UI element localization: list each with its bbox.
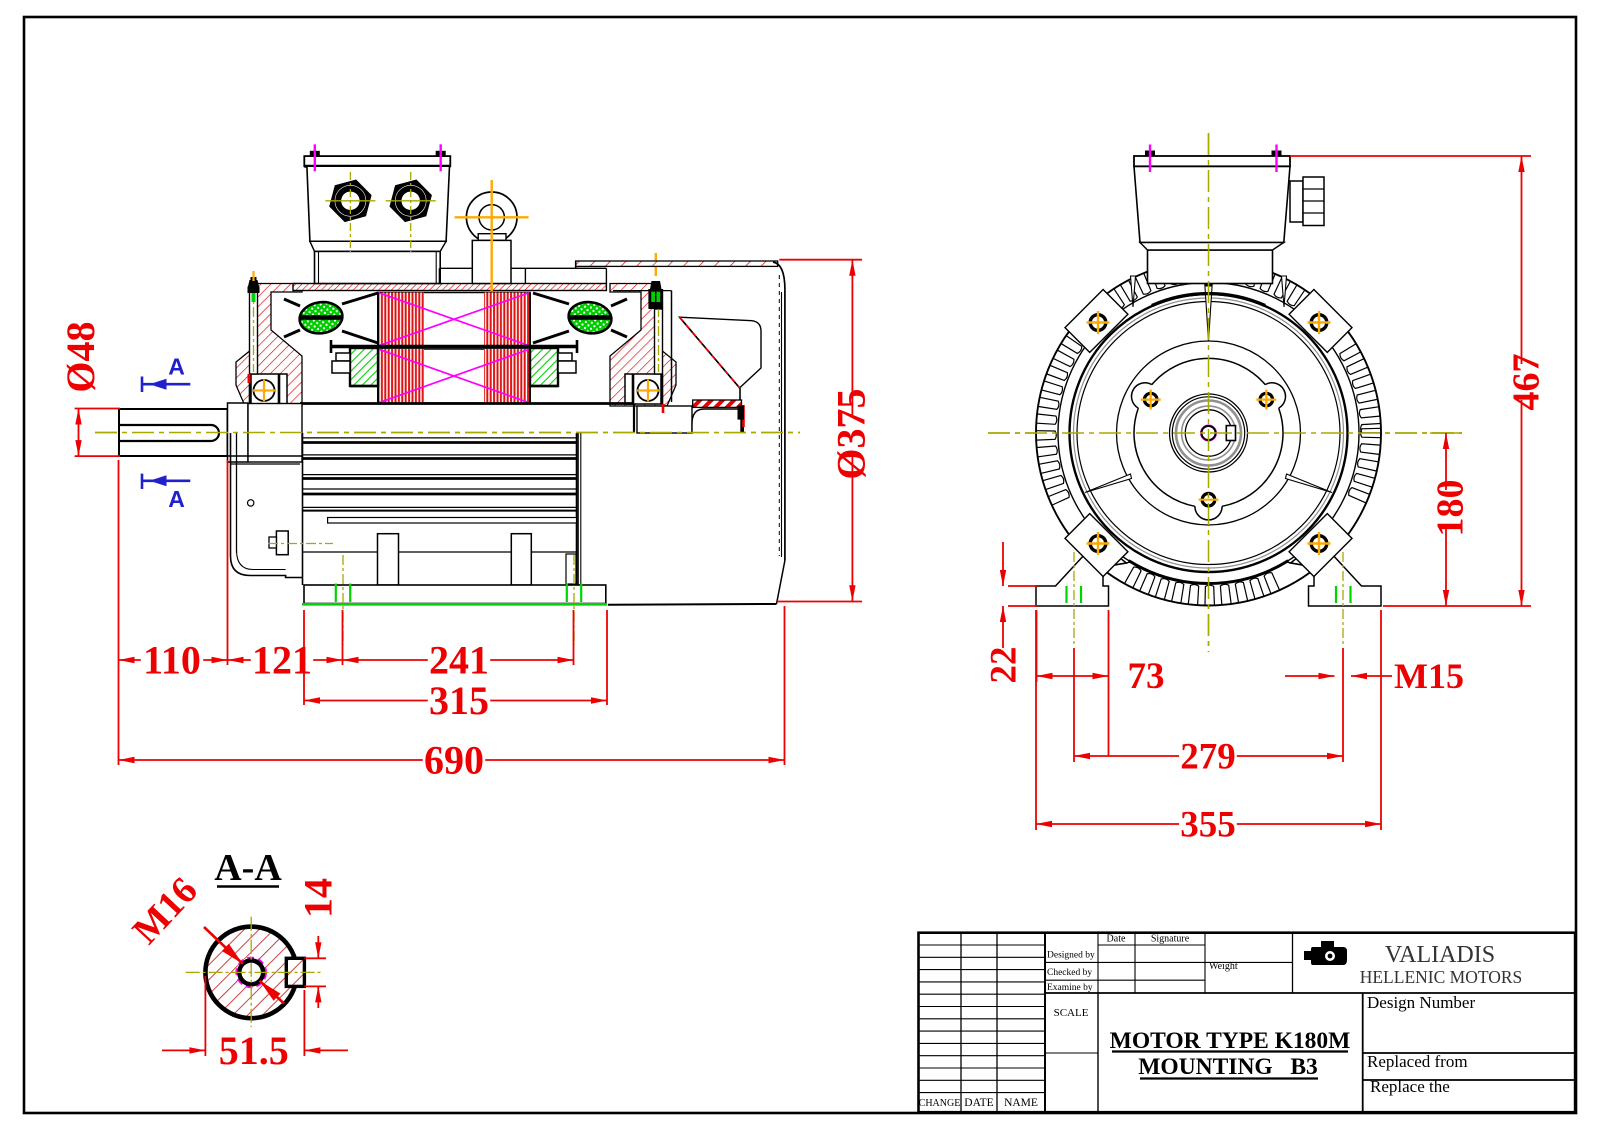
svg-text:467: 467 [1506, 354, 1548, 411]
svg-text:14: 14 [296, 878, 341, 918]
svg-text:51.5: 51.5 [219, 1028, 289, 1073]
svg-text:110: 110 [143, 638, 201, 683]
svg-text:22: 22 [984, 647, 1025, 684]
svg-text:VALIADIS: VALIADIS [1385, 942, 1495, 968]
svg-text:Checked by: Checked by [1047, 968, 1092, 978]
svg-text:Examine by: Examine by [1047, 983, 1093, 993]
svg-text:Date: Date [1107, 934, 1126, 945]
svg-text:MOUNTING B3: MOUNTING B3 [1138, 1054, 1318, 1080]
svg-text:355: 355 [1180, 805, 1236, 846]
svg-text:NAME: NAME [1004, 1097, 1038, 1109]
svg-text:690: 690 [424, 738, 484, 783]
svg-text:SCALE: SCALE [1054, 1007, 1089, 1019]
svg-text:MOTOR TYPE K180M: MOTOR TYPE K180M [1110, 1028, 1351, 1054]
svg-text:315: 315 [429, 678, 489, 723]
svg-text:279: 279 [1180, 737, 1236, 778]
svg-text:Designed by: Designed by [1047, 951, 1095, 961]
svg-text:Ø375: Ø375 [829, 388, 874, 479]
svg-text:180: 180 [1430, 480, 1472, 537]
svg-text:HELLENIC MOTORS: HELLENIC MOTORS [1360, 967, 1523, 987]
svg-text:73: 73 [1128, 656, 1165, 697]
svg-text:241: 241 [429, 638, 489, 683]
svg-text:Weight: Weight [1209, 961, 1238, 972]
svg-text:Replace the: Replace the [1370, 1077, 1450, 1096]
svg-text:M15: M15 [1394, 656, 1464, 696]
svg-text:DATE: DATE [964, 1097, 993, 1109]
svg-text:A-A: A-A [214, 847, 282, 889]
svg-text:Signature: Signature [1151, 934, 1190, 945]
svg-text:121: 121 [252, 638, 312, 683]
svg-text:A: A [168, 486, 185, 512]
svg-text:Replaced from: Replaced from [1367, 1052, 1468, 1071]
svg-text:Design Number: Design Number [1367, 993, 1475, 1012]
svg-text:CHANGE: CHANGE [919, 1098, 961, 1109]
svg-text:Ø48: Ø48 [58, 321, 103, 392]
svg-text:A: A [168, 354, 185, 380]
